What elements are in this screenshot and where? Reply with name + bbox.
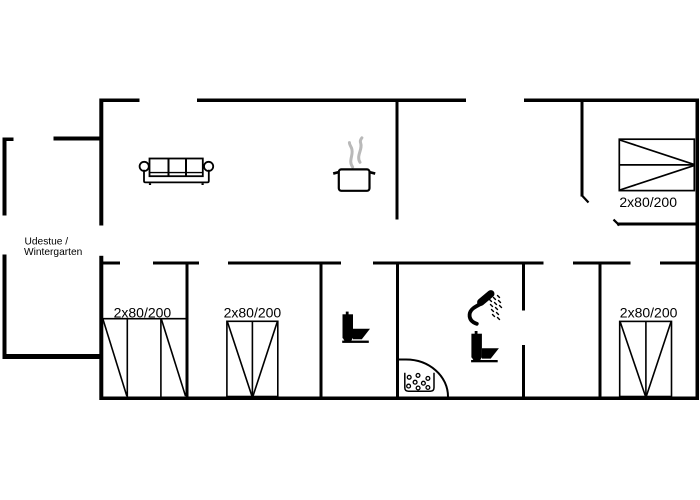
svg-text:Wintergarten: Wintergarten	[24, 247, 82, 258]
svg-text:2x80/200: 2x80/200	[620, 305, 678, 321]
svg-text:Udestue /: Udestue /	[25, 237, 69, 248]
svg-text:2x80/200: 2x80/200	[619, 194, 677, 210]
svg-text:2x80/200: 2x80/200	[114, 305, 172, 321]
svg-text:2x80/200: 2x80/200	[224, 305, 282, 321]
